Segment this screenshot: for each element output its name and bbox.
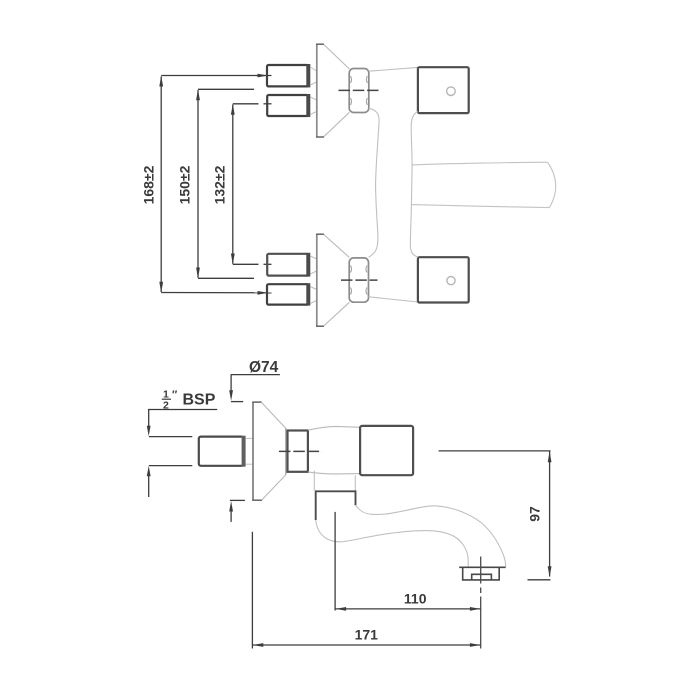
svg-text:110: 110 — [404, 591, 427, 607]
svg-text:168±2: 168±2 — [141, 165, 157, 204]
svg-text:150±2: 150±2 — [177, 165, 193, 204]
svg-text:″: ″ — [172, 389, 178, 401]
svg-text:171: 171 — [355, 627, 379, 643]
svg-text:Ø74: Ø74 — [249, 359, 279, 376]
svg-text:132±2: 132±2 — [212, 165, 228, 204]
svg-text:BSP: BSP — [183, 392, 216, 409]
svg-text:97: 97 — [527, 506, 543, 522]
